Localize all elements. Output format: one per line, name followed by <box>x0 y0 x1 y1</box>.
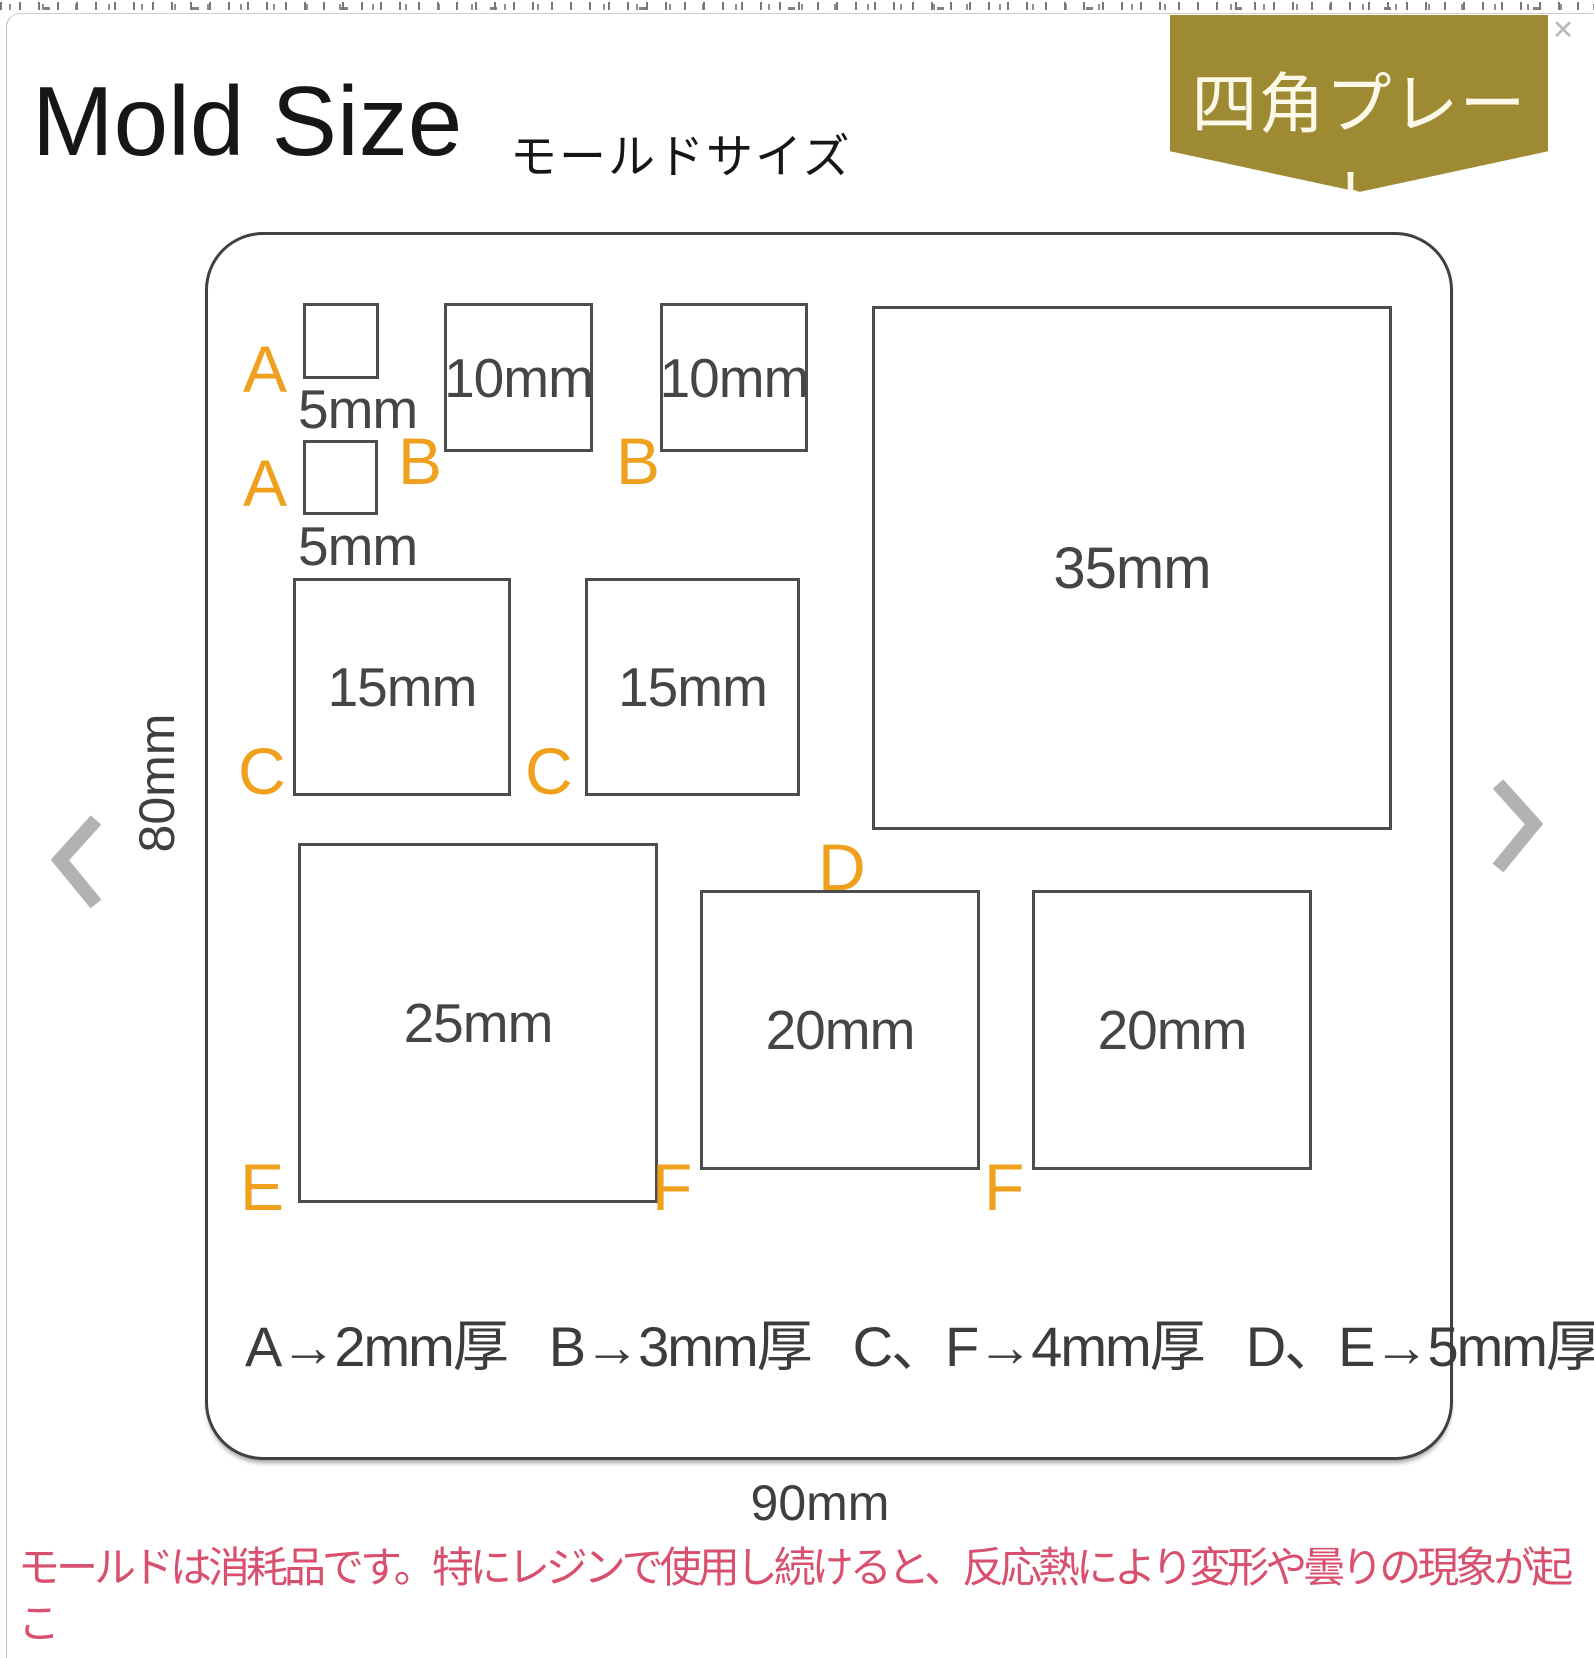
height-dimension-label: 80mm <box>132 703 182 863</box>
close-icon[interactable]: ✕ <box>1548 16 1578 46</box>
cavity-size-label-d: 35mm <box>1053 535 1210 602</box>
prev-image-button[interactable] <box>46 808 110 918</box>
cavity-square-a2 <box>303 440 378 515</box>
thickness-note-a: A→2mm厚 <box>245 1302 507 1383</box>
cavity-square-c2: 15mm <box>585 578 800 796</box>
cavity-square-f1: 20mm <box>700 890 980 1170</box>
plate-type-badge-label: 四角プレート <box>1170 51 1548 243</box>
clipped-page-text <box>0 0 1594 13</box>
cavity-square-b2: 10mm <box>660 303 808 452</box>
page-title: Mold Size <box>32 72 462 170</box>
warning-text-line1: モールドは消耗品です。特にレジンで使用し続けると、反応熱により変形や曇りの現象が… <box>18 1540 1578 1652</box>
cavity-letter-a1: A <box>243 336 287 402</box>
cavity-square-b1: 10mm <box>444 303 593 452</box>
cavity-size-label-b1: 10mm <box>444 346 593 410</box>
thickness-note-cf: C、F→4mm厚 <box>853 1302 1204 1383</box>
thickness-notes: A→2mm厚 B→3mm厚 C、F→4mm厚 D、E→5mm厚 <box>245 1302 1594 1383</box>
cavity-square-e: 25mm <box>298 843 658 1203</box>
cavity-letter-b2: B <box>616 428 660 494</box>
next-image-button[interactable] <box>1486 772 1550 882</box>
lightbox-overlay: ✕ Mold Size モールドサイズ 四角プレート 10mm 10mm 35m… <box>0 0 1594 1658</box>
chevron-right-icon <box>1486 772 1550 882</box>
cavity-letter-f1: F <box>652 1154 692 1220</box>
cavity-letter-c2: C <box>525 738 573 804</box>
thickness-note-de: D、E→5mm厚 <box>1246 1302 1594 1383</box>
cavity-size-label-a2: 5mm <box>298 519 417 574</box>
cavity-size-label-e: 25mm <box>404 991 553 1055</box>
thickness-note-b: B→3mm厚 <box>549 1302 811 1383</box>
page-subtitle: モールドサイズ <box>510 118 852 187</box>
cavity-letter-f2: F <box>984 1154 1024 1220</box>
cavity-square-c1: 15mm <box>293 578 511 796</box>
width-dimension-label: 90mm <box>740 1478 900 1528</box>
cavity-letter-d: D <box>818 834 866 900</box>
cavity-letter-b1: B <box>398 428 442 494</box>
cavity-size-label-f1: 20mm <box>766 998 915 1062</box>
plate-type-badge: 四角プレート <box>1170 15 1548 192</box>
cavity-size-label-c2: 15mm <box>618 655 767 719</box>
cavity-square-f2: 20mm <box>1032 890 1312 1170</box>
cavity-size-label-f2: 20mm <box>1098 998 1247 1062</box>
cavity-letter-c1: C <box>238 738 286 804</box>
warning-text-line2: る場合があります。硬化後は人肌くらいの温度まで冷ましてから取り出すと長持ちします… <box>18 1652 1578 1658</box>
warning-text: モールドは消耗品です。特にレジンで使用し続けると、反応熱により変形や曇りの現象が… <box>18 1540 1578 1658</box>
cavity-letter-a2: A <box>243 450 287 516</box>
cavity-square-a1 <box>303 303 379 379</box>
cavity-letter-e: E <box>240 1154 284 1220</box>
cavity-square-d: 35mm <box>872 306 1392 830</box>
chevron-left-icon <box>46 808 110 918</box>
cavity-size-label-c1: 15mm <box>328 655 477 719</box>
cavity-size-label-b2: 10mm <box>660 346 809 410</box>
